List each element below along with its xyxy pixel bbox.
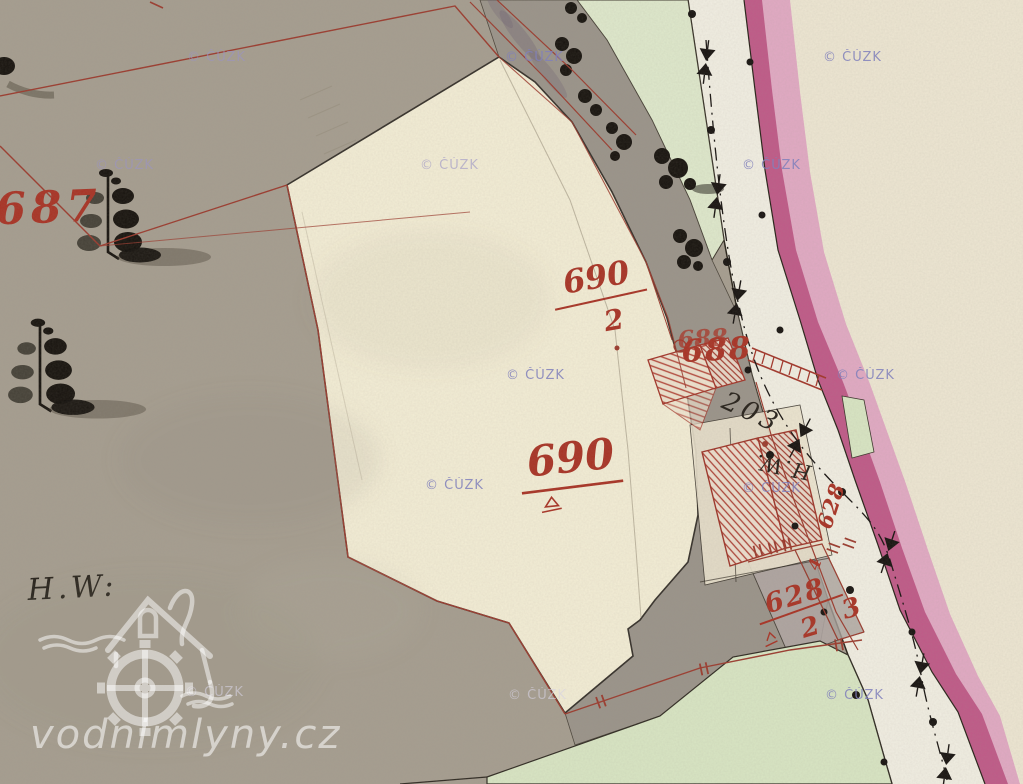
paper-grain-overlay <box>0 0 1023 784</box>
cadastral-map-canvas[interactable]: 687 690 2 690 688 688 628 2 3 628 4 203 … <box>0 0 1023 784</box>
map-drawing: 687 690 2 690 688 688 628 2 3 628 4 203 … <box>0 0 1023 784</box>
